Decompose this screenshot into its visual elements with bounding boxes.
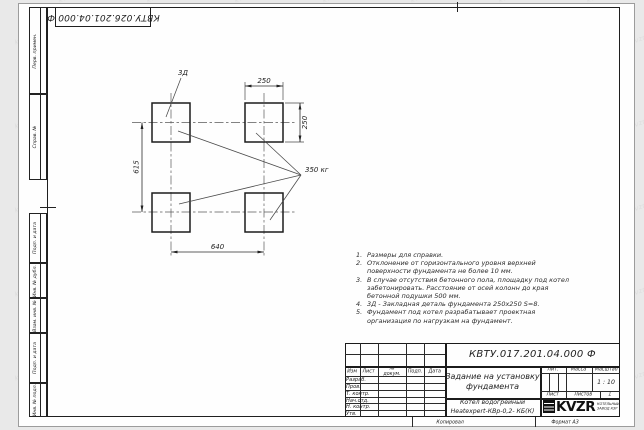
note-number: 5. <box>356 308 367 324</box>
margin-cell-podp-data-2: Подп. и дата <box>29 333 47 383</box>
note-item: 1.Размеры для справки. <box>356 251 586 259</box>
row-utv: Утв. <box>346 410 386 417</box>
note-text: Размеры для справки. <box>367 251 575 259</box>
note-text: В случае отсутствия бетонного пола, площ… <box>367 276 575 301</box>
margin-label: Инв. № дубл. <box>32 264 37 296</box>
sheet: kvzr.kzkvzr.kzkvzr.kzkvzr.kzkvzr.kzkvzr.… <box>0 0 644 430</box>
note-text: Фундамент под котел разрабатывает проект… <box>367 308 575 324</box>
margin-cell-podp-data-1: Подп. и дата <box>29 213 47 263</box>
margin-cell-perv-primen: Перв. примен. <box>29 7 47 94</box>
sheets-label: Листов <box>566 391 600 398</box>
note-item: 5.Фундамент под котел разрабатывает прое… <box>356 308 586 324</box>
top-designation-box: КВТУ.026.201.04.000 Ф <box>55 7 151 27</box>
note-number: 2. <box>356 259 367 275</box>
note-number: 1. <box>356 251 367 259</box>
notes-list: 1.Размеры для справки. 2.Отклонение от г… <box>356 251 586 325</box>
designation: КВТУ.017.201.04.000 Ф <box>445 343 620 366</box>
row-prov: Пров. <box>346 383 386 390</box>
margin-label: Взам. инв. № <box>32 300 37 332</box>
product-line-1: Котел водогрейный <box>460 399 525 407</box>
kvzr-logo-mark <box>543 400 555 413</box>
note-item: 3.В случае отсутствия бетонного пола, пл… <box>356 276 586 301</box>
margin-label: Справ. № <box>32 126 37 149</box>
kvzr-logo-text: KVZR <box>556 398 595 415</box>
margin-label: Перв. примен. <box>32 33 37 68</box>
row-nkontr: Н. контр. <box>346 403 386 410</box>
centering-mark-top <box>457 2 458 12</box>
col-header-docnum: № докум. <box>378 366 406 376</box>
sheet-label: Лист <box>540 391 566 398</box>
top-designation-text: КВТУ.026.201.04.000 Ф <box>47 12 160 22</box>
col-header-list: Лист <box>360 366 378 376</box>
note-number: 4. <box>356 300 367 308</box>
scale-value: 1 : 10 <box>592 373 620 391</box>
mass-label: Масса <box>566 366 592 373</box>
row-razrab: Разраб. <box>346 376 386 383</box>
product-line-2: Heatexpert-КВр-0,2- КБ(К) <box>451 408 535 416</box>
note-text: 3Д - Закладная деталь фундамента 250х250… <box>367 300 575 308</box>
col-header-data: Дата <box>424 366 445 376</box>
doc-title: Задание на установку фундамента <box>445 366 540 398</box>
format-label: Формат А3 <box>525 417 605 427</box>
lit-label: Лит. <box>540 366 566 373</box>
col-header-podp: Подп. <box>406 366 424 376</box>
logo-caption-line-2: ЗАВОД КЗР <box>597 406 617 410</box>
margin-cell-sprav-no: Справ. № <box>29 94 47 180</box>
margin-cell-vzam-inv: Взам. инв. № <box>29 298 47 333</box>
scale-label: Масштаб <box>592 366 620 373</box>
centering-mark-left <box>40 207 56 208</box>
copied-label: Копировал <box>405 417 495 427</box>
row-tkontr: Т. контр. <box>346 390 386 397</box>
margin-cell-inv-podl: Инв. № подл. <box>29 383 47 417</box>
margin-cell-inv-dubl: Инв. № дубл. <box>29 263 47 298</box>
product-name: Котел водогрейный Heatexpert-КВр-0,2- КБ… <box>445 398 540 417</box>
col-header-izm: Изм <box>345 366 360 376</box>
kvzr-logo-caption: КОТЕЛЬНЫЙЗАВОД КЗР <box>597 400 621 413</box>
note-text: Отклонение от горизонтального уровня вер… <box>367 259 575 275</box>
margin-label: Инв. № подл. <box>32 384 37 416</box>
note-item: 2.Отклонение от горизонтального уровня в… <box>356 259 586 275</box>
margin-label: Подп. и дата <box>32 342 37 374</box>
note-number: 3. <box>356 276 367 301</box>
sheets-value: 1 <box>600 391 620 398</box>
margin-label: Подп. и дата <box>32 222 37 254</box>
note-item: 4.3Д - Закладная деталь фундамента 250х2… <box>356 300 586 308</box>
